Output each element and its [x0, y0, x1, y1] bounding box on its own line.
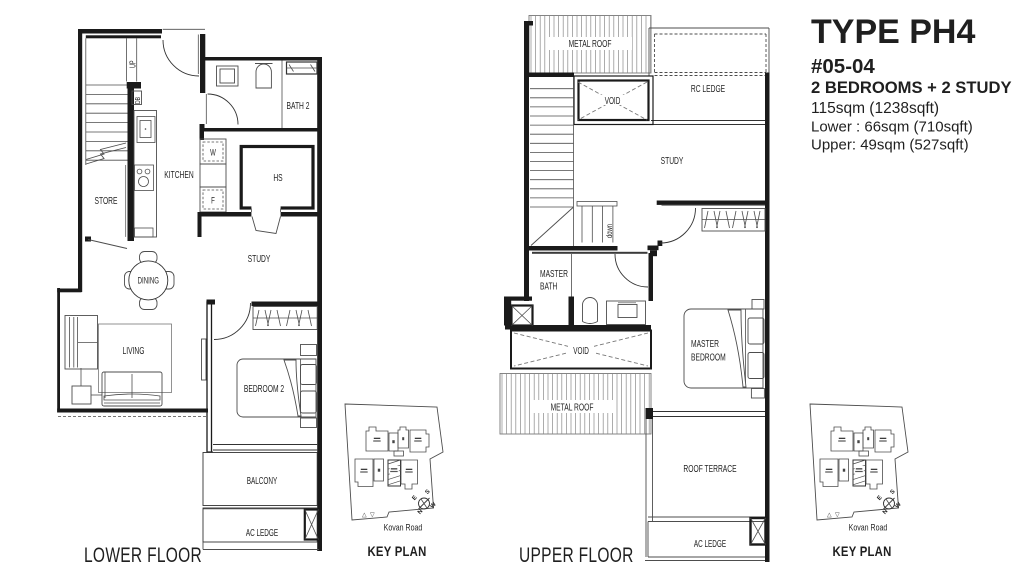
svg-text:△: △: [827, 513, 832, 519]
svg-text:S: S: [425, 489, 432, 496]
svg-text:VOID: VOID: [605, 94, 621, 106]
svg-text:MASTER: MASTER: [540, 267, 568, 279]
svg-text:AC LEDGE: AC LEDGE: [246, 526, 279, 538]
svg-text:UPPER FLOOR: UPPER FLOOR: [519, 543, 634, 567]
svg-text:#05-04: #05-04: [811, 55, 875, 78]
svg-text:RC LEDGE: RC LEDGE: [691, 82, 725, 94]
svg-text:BEDROOM: BEDROOM: [691, 351, 726, 363]
svg-text:STORE: STORE: [95, 194, 118, 206]
svg-text:LOWER FLOOR: LOWER FLOOR: [84, 543, 202, 567]
svg-text:Kovan Road: Kovan Road: [849, 523, 888, 533]
svg-text:STUDY: STUDY: [661, 154, 684, 166]
svg-text:STUDY: STUDY: [248, 252, 271, 264]
svg-text:▽: ▽: [835, 513, 840, 519]
svg-text:KITCHEN: KITCHEN: [164, 168, 193, 180]
svg-text:S: S: [890, 489, 897, 496]
svg-text:2 BEDROOMS + 2 STUDY: 2 BEDROOMS + 2 STUDY: [811, 78, 1012, 97]
svg-text:DINING: DINING: [138, 275, 159, 286]
svg-text:DB: DB: [134, 97, 142, 104]
svg-text:BATH: BATH: [540, 280, 557, 292]
svg-text:VOID: VOID: [573, 344, 589, 356]
svg-text:E: E: [412, 495, 419, 502]
svg-text:KEY PLAN: KEY PLAN: [367, 544, 426, 559]
svg-text:AC LEDGE: AC LEDGE: [694, 537, 727, 549]
svg-text:down: down: [605, 224, 614, 238]
svg-text:LIVING: LIVING: [123, 344, 145, 356]
svg-text:Lower : 66sqm (710sqft): Lower : 66sqm (710sqft): [811, 119, 973, 136]
svg-text:Upper: 49sqm (527sqft): Upper: 49sqm (527sqft): [811, 137, 969, 154]
svg-text:Kovan Road: Kovan Road: [384, 523, 423, 533]
svg-text:BEDROOM 2: BEDROOM 2: [244, 382, 284, 394]
svg-text:HS: HS: [273, 171, 282, 183]
svg-text:MASTER: MASTER: [691, 337, 719, 349]
svg-text:METAL ROOF: METAL ROOF: [569, 37, 612, 49]
svg-text:W: W: [210, 147, 216, 158]
svg-text:KEY PLAN: KEY PLAN: [832, 544, 891, 559]
svg-text:E: E: [877, 495, 884, 502]
svg-text:UP: UP: [130, 60, 138, 68]
svg-text:△: △: [362, 513, 367, 519]
svg-text:BATH 2: BATH 2: [287, 99, 310, 111]
svg-text:115sqm (1238sqft): 115sqm (1238sqft): [811, 100, 939, 117]
svg-text:N: N: [882, 509, 889, 516]
svg-text:TYPE PH4: TYPE PH4: [811, 13, 975, 51]
svg-text:▽: ▽: [370, 513, 375, 519]
svg-text:ROOF TERRACE: ROOF TERRACE: [683, 462, 736, 474]
svg-text:F: F: [211, 195, 215, 206]
svg-text:N: N: [417, 509, 424, 516]
svg-text:METAL ROOF: METAL ROOF: [551, 401, 594, 413]
svg-text:BALCONY: BALCONY: [247, 474, 278, 486]
